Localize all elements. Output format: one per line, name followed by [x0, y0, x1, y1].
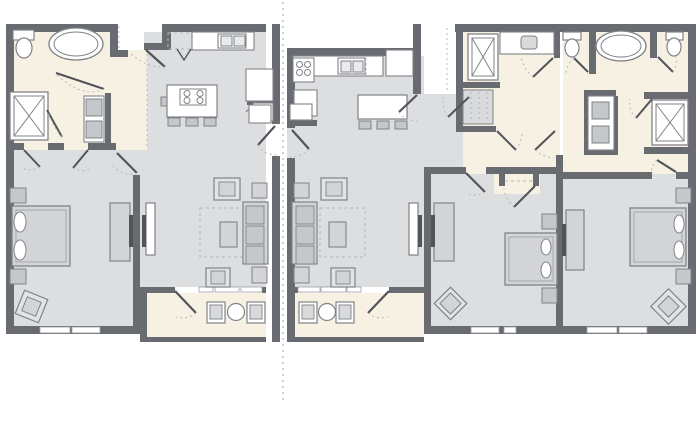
- tv-stand-A-living: [146, 203, 155, 255]
- unitA-entry-gap-floor: [127, 50, 147, 58]
- wall-A-kitchen-top: [162, 24, 266, 32]
- wall-A-balc-top-end: [262, 287, 266, 293]
- wall-bath2-left: [456, 24, 463, 132]
- toilet-A-bowl: [16, 38, 32, 58]
- nightstand: [676, 188, 691, 203]
- wall-strip-bottom: [556, 172, 652, 179]
- wall-party-left-lower: [272, 156, 280, 342]
- pillow: [541, 239, 551, 255]
- window: [587, 327, 617, 333]
- floor-plan-page: [0, 0, 697, 445]
- wall-A-wd-right: [105, 93, 111, 143]
- armchair-A-bottom-cushion: [211, 271, 225, 284]
- tv-A-bedroom: [129, 215, 133, 247]
- stool: [395, 121, 407, 129]
- nightstand: [542, 214, 557, 229]
- dryer-A: [86, 121, 102, 138]
- entry-closet-A: [249, 105, 271, 123]
- window: [321, 287, 346, 292]
- sink-B-basin: [341, 61, 351, 72]
- stool: [168, 118, 180, 126]
- wall-A-balc-left: [140, 287, 147, 342]
- sofa-A-cushion: [246, 246, 264, 264]
- side-table-A-top: [252, 183, 267, 198]
- toilet-master-bowl: [667, 38, 681, 56]
- wall-A-entry-stub: [110, 50, 128, 57]
- unitA-bath-hall-floor: [110, 57, 147, 150]
- floor-plan-svg: [0, 0, 697, 445]
- dresser-master: [566, 210, 584, 270]
- armchair-B-bottom-cushion: [336, 271, 350, 284]
- wall-B-balc-top: [389, 287, 424, 293]
- side-table-A-bottom: [252, 267, 267, 283]
- tv-B-living: [418, 215, 422, 247]
- window: [347, 287, 361, 292]
- linen-closet-B: [463, 90, 493, 124]
- window: [215, 287, 239, 292]
- fridge-A: [246, 69, 273, 101]
- pillow: [14, 240, 26, 260]
- pillow: [14, 212, 26, 232]
- wall-B-balc-top-end: [292, 287, 298, 293]
- pillow: [674, 215, 684, 233]
- wall-below-shelf-closet: [456, 126, 496, 132]
- wall-A-bathbed-2: [48, 143, 64, 150]
- sink-A-basin: [234, 36, 245, 46]
- stool: [186, 118, 198, 126]
- wall-corridor-bottom: [486, 167, 560, 174]
- entry-closet-B: [290, 104, 312, 120]
- wall-masterbath-top: [560, 24, 696, 32]
- fridge-B: [386, 50, 413, 76]
- island-B: [358, 95, 407, 119]
- wall-bath2-top: [455, 24, 560, 32]
- wall-closet2-stub-l: [499, 174, 505, 186]
- dryer-B: [592, 126, 609, 143]
- wall-B-cabinet-stub: [289, 120, 317, 126]
- pillow: [541, 262, 551, 278]
- window: [72, 327, 100, 333]
- wall-A-left-outer: [6, 24, 14, 334]
- wall-mshower-top: [644, 92, 696, 99]
- wall-closet2-stub-r: [533, 174, 539, 186]
- wall-mshower-bottom: [644, 147, 696, 154]
- wall-shower2-bottom: [456, 82, 500, 88]
- balcony-chair-seat: [210, 305, 222, 319]
- stool: [359, 121, 371, 129]
- nightstand: [10, 188, 26, 203]
- tub-A: [49, 28, 103, 60]
- wall-B-balc-bottom: [292, 337, 424, 342]
- wall-B-step-v: [413, 24, 421, 94]
- wall-vanity-toilet2: [554, 28, 560, 58]
- pillow: [674, 241, 684, 259]
- balcony-chair-seat: [339, 305, 351, 319]
- washer-A: [86, 99, 102, 116]
- wall-bed2-left: [424, 167, 431, 334]
- nightstand: [542, 288, 557, 303]
- unitA-entry-notch: [118, 24, 144, 50]
- sofa-A-cushion: [246, 226, 264, 244]
- tv-stand-B-living: [409, 203, 418, 255]
- window: [504, 327, 516, 333]
- side-table-B-top: [294, 183, 309, 198]
- coffee-table-B: [329, 222, 346, 247]
- armchair-A-top-cushion: [219, 182, 235, 196]
- vanity-sink-bath2: [521, 36, 537, 49]
- window: [40, 327, 70, 333]
- balcony-table: [319, 304, 336, 321]
- washer-B: [592, 102, 609, 119]
- wall-strip-bottom-right: [676, 172, 696, 179]
- stool: [377, 121, 389, 129]
- sofa-B-cushion: [296, 226, 314, 244]
- window: [298, 287, 320, 292]
- nightstand: [676, 269, 691, 284]
- window: [619, 327, 647, 333]
- tv-bed2: [431, 215, 435, 247]
- dresser-A: [110, 203, 130, 261]
- sofa-B-cushion: [296, 206, 314, 224]
- wall-A-bathbed-3: [88, 143, 116, 150]
- tv-A-living: [142, 215, 146, 247]
- stool: [204, 118, 216, 126]
- sofa-B-cushion: [296, 246, 314, 264]
- side-table-B-bottom: [294, 267, 309, 283]
- balcony-table: [228, 304, 245, 321]
- wall-A-bed-living: [133, 175, 140, 326]
- window: [199, 287, 213, 292]
- armchair-B-top-cushion: [326, 182, 342, 196]
- wall-toilet2-tub: [589, 32, 596, 74]
- balcony-chair-seat: [302, 305, 314, 319]
- range-B: [293, 58, 314, 82]
- floor-plan: [0, 0, 697, 445]
- sink-A-basin: [221, 36, 232, 46]
- dresser-bed2: [434, 203, 454, 261]
- tv-master: [562, 224, 566, 256]
- window: [471, 327, 499, 333]
- coffee-table-A: [220, 222, 237, 247]
- toilet-2-bowl: [565, 39, 579, 57]
- sofa-A-cushion: [246, 206, 264, 224]
- nightstand: [10, 269, 26, 284]
- wall-A-bathbed-1: [6, 143, 24, 150]
- balcony-chair-seat: [250, 305, 262, 319]
- sink-B-basin: [353, 61, 363, 72]
- wall-A-balc-bottom: [140, 337, 266, 342]
- wall-tub-mtoilet: [650, 32, 657, 58]
- island-A-handle: [161, 97, 167, 106]
- window: [241, 287, 262, 292]
